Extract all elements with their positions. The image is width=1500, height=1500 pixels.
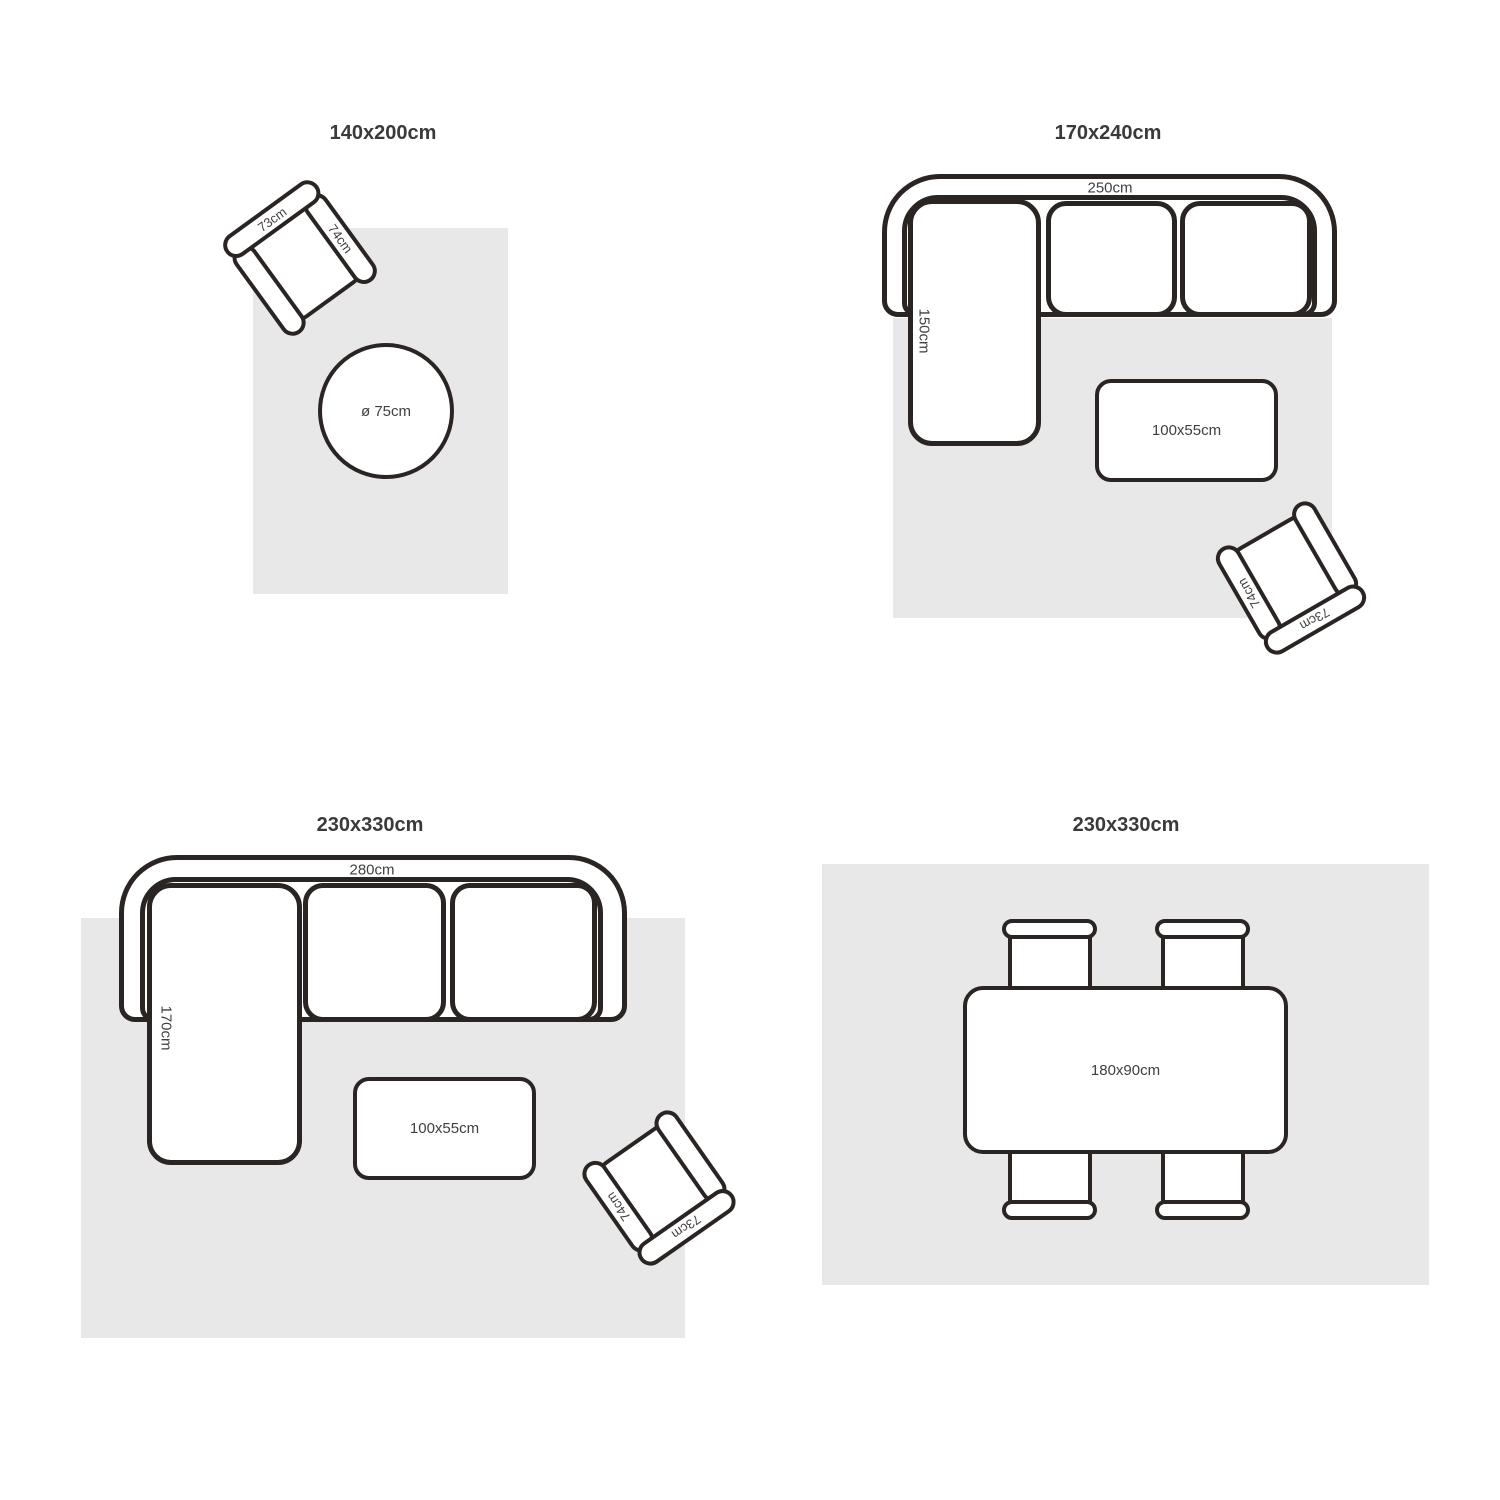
panel3-sofa-cushion xyxy=(450,883,597,1022)
armchair-back-dimension: 73cm xyxy=(1298,606,1332,633)
panel2-sofa-width-dimension: 250cm xyxy=(1087,180,1132,197)
panel1-title: 140x200cm xyxy=(330,122,437,145)
dining-chair-seat xyxy=(1008,1150,1092,1205)
panel4-title: 230x330cm xyxy=(1073,814,1180,837)
round-table-dimension: ø 75cm xyxy=(361,403,411,420)
panel2-coffee-table: 100x55cm xyxy=(1095,379,1278,482)
dining-chair-seat xyxy=(1161,935,1245,990)
panel3-sofa-cushion xyxy=(303,883,446,1022)
panel3-chaise-dimension: 170cm xyxy=(158,1005,175,1050)
dining-table-dimension: 180x90cm xyxy=(1091,1062,1160,1079)
panel3-title: 230x330cm xyxy=(317,814,424,837)
panel1-round-table: ø 75cm xyxy=(318,343,454,479)
panel3-coffee-table: 100x55cm xyxy=(353,1077,536,1180)
panel3-sofa-width-dimension: 280cm xyxy=(349,862,394,879)
panel2-sofa-cushion xyxy=(1046,201,1177,317)
dining-chair-back xyxy=(1155,919,1250,939)
dining-chair-back xyxy=(1002,1200,1097,1220)
dining-chair-seat xyxy=(1008,935,1092,990)
rug-size-guide-diagram: 140x200cm 73cm 74cm ø 75cm 170x240cm 250… xyxy=(0,0,1500,1500)
coffee-table-dimension: 100x55cm xyxy=(1152,422,1221,439)
dining-chair-back xyxy=(1002,919,1097,939)
dining-chair-back xyxy=(1155,1200,1250,1220)
dining-chair-seat xyxy=(1161,1150,1245,1205)
panel2-title: 170x240cm xyxy=(1055,122,1162,145)
panel4-dining-table: 180x90cm xyxy=(963,986,1288,1154)
panel2-chaise-dimension: 150cm xyxy=(916,308,933,353)
coffee-table-dimension: 100x55cm xyxy=(410,1120,479,1137)
panel2-sofa-cushion xyxy=(1180,201,1312,317)
